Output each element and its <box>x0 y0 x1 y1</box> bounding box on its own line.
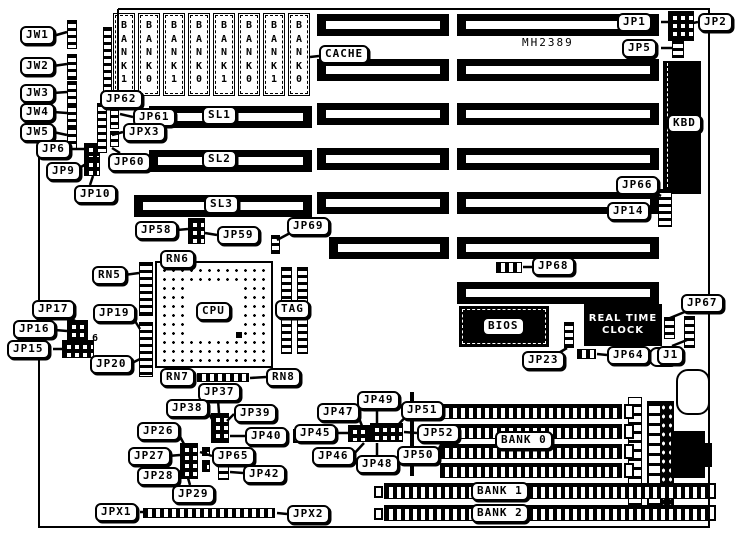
leader-line <box>53 132 67 135</box>
callout-jp14: JP14 <box>607 202 650 221</box>
callout-jp39: JP39 <box>234 404 277 423</box>
leader-line <box>188 478 190 485</box>
leader-line <box>205 233 217 235</box>
callout-jp15: JP15 <box>7 340 50 359</box>
callout-rn6: RN6 <box>160 250 195 269</box>
leader-line <box>250 377 266 378</box>
leader-line <box>53 32 67 36</box>
leader-line <box>53 64 67 66</box>
callout-jp6: JP6 <box>36 140 71 159</box>
callout-jp69: JP69 <box>287 217 330 236</box>
callout-rn5: RN5 <box>92 266 127 285</box>
callout-j1: J1 <box>657 346 684 365</box>
callout-jpx1: JPX1 <box>95 503 138 522</box>
callout-jp20: JP20 <box>90 355 133 374</box>
callout-kbd: KBD <box>667 114 702 133</box>
callout-jp29: JP29 <box>172 485 215 504</box>
leader-line <box>597 354 607 355</box>
callout-jp40: JP40 <box>245 427 288 446</box>
callout-jp52: JP52 <box>417 424 460 443</box>
callout-jp17: JP17 <box>32 300 75 319</box>
motherboard-diagram: REAL TIME CLOCK MH2389 6 BANK1BANK0BANK1… <box>0 0 744 539</box>
callout-jp38: JP38 <box>166 399 209 418</box>
callout-jpx2: JPX2 <box>287 505 330 524</box>
callout-cache: CACHE <box>319 45 369 64</box>
leader-line <box>120 114 133 117</box>
callout-jp1: JP1 <box>617 13 652 32</box>
callout-jp45: JP45 <box>294 424 337 443</box>
leader-line <box>53 92 67 93</box>
callout-jp49: JP49 <box>357 391 400 410</box>
callout-jp64: JP64 <box>607 346 650 365</box>
callout-cpu: CPU <box>196 302 231 321</box>
leader-line <box>404 432 417 433</box>
callout-jp47: JP47 <box>317 403 360 422</box>
leader-line <box>310 56 319 57</box>
callout-jp5: JP5 <box>622 39 657 58</box>
leader-line <box>112 132 123 135</box>
callout-jp16: JP16 <box>13 320 56 339</box>
callout-bank0: BANK 0 <box>495 431 553 450</box>
callout-jp59: JP59 <box>217 226 260 245</box>
callout-jp46: JP46 <box>312 447 355 466</box>
callout-jp27: JP27 <box>128 447 171 466</box>
leader-line <box>177 229 188 230</box>
callout-jp28: JP28 <box>137 467 180 486</box>
callout-sl3: SL3 <box>204 195 239 214</box>
callout-jp19: JP19 <box>93 304 136 323</box>
callout-tag: TAG <box>275 300 310 319</box>
callout-jp48: JP48 <box>356 455 399 474</box>
callout-jw3: JW3 <box>20 84 55 103</box>
callout-jp66: JP66 <box>616 176 659 195</box>
callout-jp65: JP65 <box>212 447 255 466</box>
callout-jp67: JP67 <box>681 294 724 313</box>
callout-rn7: RN7 <box>160 368 195 387</box>
pin6-annotation: 6 <box>92 333 98 344</box>
callout-jp60: JP60 <box>108 153 151 172</box>
callout-sl2: SL2 <box>202 150 237 169</box>
callout-jp9: JP9 <box>46 162 81 181</box>
callout-jp62: JP62 <box>100 90 143 109</box>
callout-jp2: JP2 <box>698 13 733 32</box>
callout-jp58: JP58 <box>135 221 178 240</box>
leader-line <box>200 452 212 456</box>
callout-jp68: JP68 <box>532 257 575 276</box>
callout-jp42: JP42 <box>243 465 286 484</box>
callout-sl1: SL1 <box>202 106 237 125</box>
callout-jp23: JP23 <box>522 351 565 370</box>
leader-line <box>277 513 287 514</box>
callout-bank2: BANK 2 <box>471 504 529 523</box>
callout-jw1: JW1 <box>20 26 55 45</box>
board-model-text: MH2389 <box>522 36 574 49</box>
callout-rn8: RN8 <box>266 368 301 387</box>
leader-line <box>227 414 234 421</box>
callout-jw4: JW4 <box>20 103 55 122</box>
callout-bios: BIOS <box>482 317 525 336</box>
callout-jpx3: JPX3 <box>123 123 166 142</box>
callout-jp51: JP51 <box>401 401 444 420</box>
callout-jw2: JW2 <box>20 57 55 76</box>
callout-jp10: JP10 <box>74 185 117 204</box>
leader-line <box>55 330 67 331</box>
leader-line <box>53 112 67 113</box>
callout-jp26: JP26 <box>137 422 180 441</box>
leader-line <box>230 472 243 473</box>
callout-bank1: BANK 1 <box>471 482 529 501</box>
leader-line <box>90 176 93 185</box>
callout-jp50: JP50 <box>397 446 440 465</box>
